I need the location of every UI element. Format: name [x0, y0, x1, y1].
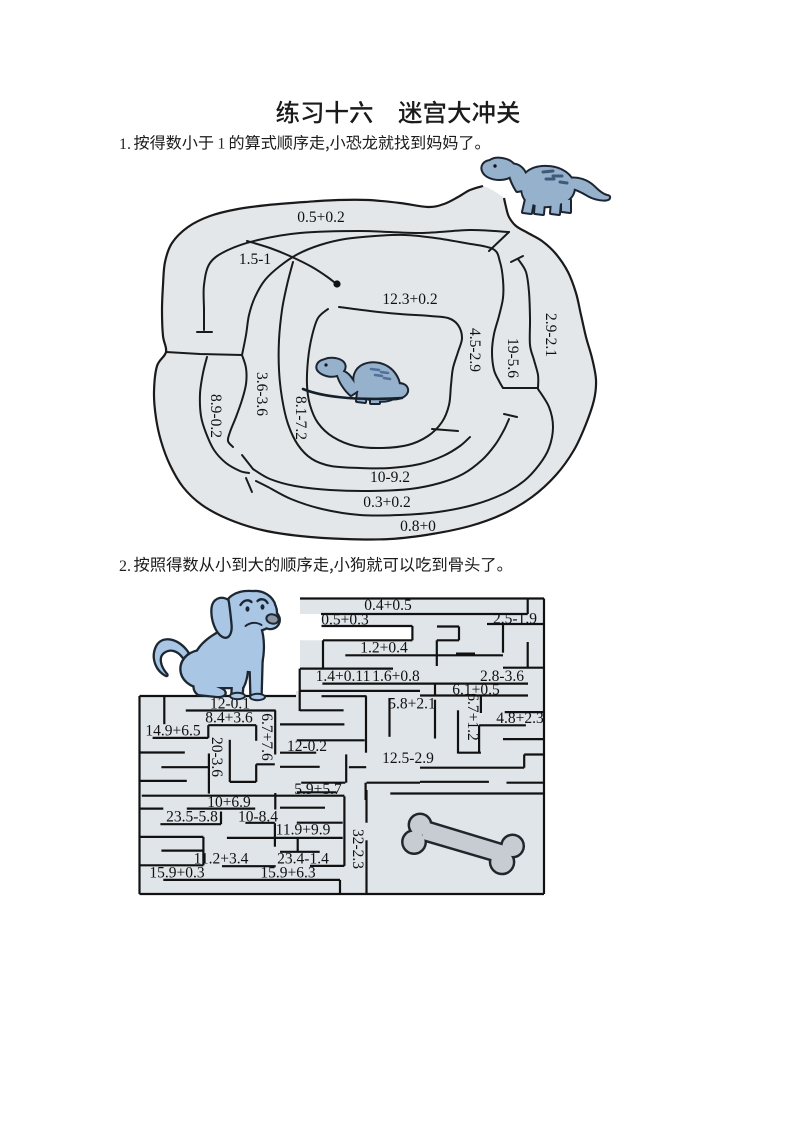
svg-text:1: 1: [218, 136, 226, 153]
svg-text:6.7+7.6: 6.7+7.6: [258, 713, 275, 761]
svg-text:1.5-1: 1.5-1: [239, 251, 271, 268]
svg-text:0.3+0.2: 0.3+0.2: [363, 494, 411, 511]
svg-text:1.2+0.4: 1.2+0.4: [360, 640, 408, 657]
svg-text:12.5-2.9: 12.5-2.9: [382, 750, 434, 767]
svg-text:1.6+0.8: 1.6+0.8: [372, 668, 420, 685]
svg-text:5.9+5.7: 5.9+5.7: [294, 781, 342, 798]
svg-text:14.9+6.5: 14.9+6.5: [145, 723, 200, 740]
svg-text:32-2.3: 32-2.3: [349, 829, 366, 869]
svg-text:1.: 1.: [119, 136, 131, 153]
svg-text:12-0.2: 12-0.2: [287, 738, 327, 755]
svg-text:2.: 2.: [119, 558, 131, 575]
svg-text:6.7+1.2: 6.7+1.2: [464, 693, 481, 741]
svg-text:0.5+0.3: 0.5+0.3: [321, 612, 369, 629]
svg-text:19-5.6: 19-5.6: [504, 338, 521, 378]
svg-text:15.9+0.3: 15.9+0.3: [149, 865, 204, 882]
svg-text:3.6-3.6: 3.6-3.6: [253, 372, 270, 416]
svg-text:2.9-2.1: 2.9-2.1: [542, 313, 559, 357]
svg-text:4.5-2.9: 4.5-2.9: [466, 328, 483, 372]
svg-text:5.8+2.1: 5.8+2.1: [388, 696, 436, 713]
svg-text:10-9.2: 10-9.2: [370, 469, 410, 486]
svg-text:15.9+6.3: 15.9+6.3: [260, 865, 315, 882]
svg-text:8.9-0.2: 8.9-0.2: [207, 394, 224, 438]
svg-text:2.5-1.9: 2.5-1.9: [493, 611, 537, 628]
svg-text:11.9+9.9: 11.9+9.9: [276, 822, 331, 839]
svg-text:0.4+0.5: 0.4+0.5: [364, 597, 412, 614]
svg-text:0.8+0: 0.8+0: [400, 518, 436, 535]
svg-text:8.1-7.2: 8.1-7.2: [292, 396, 309, 440]
svg-text:20-3.6: 20-3.6: [208, 737, 225, 777]
svg-text:8.4+3.6: 8.4+3.6: [205, 710, 253, 727]
svg-text:4.8+2.3: 4.8+2.3: [496, 710, 544, 727]
svg-text:1.4+0.11: 1.4+0.11: [316, 668, 371, 685]
svg-text:12.3+0.2: 12.3+0.2: [382, 291, 437, 308]
svg-text:0.5+0.2: 0.5+0.2: [297, 209, 345, 226]
svg-text:23.5-5.8: 23.5-5.8: [166, 809, 218, 826]
svg-text:10-8.4: 10-8.4: [238, 809, 278, 826]
